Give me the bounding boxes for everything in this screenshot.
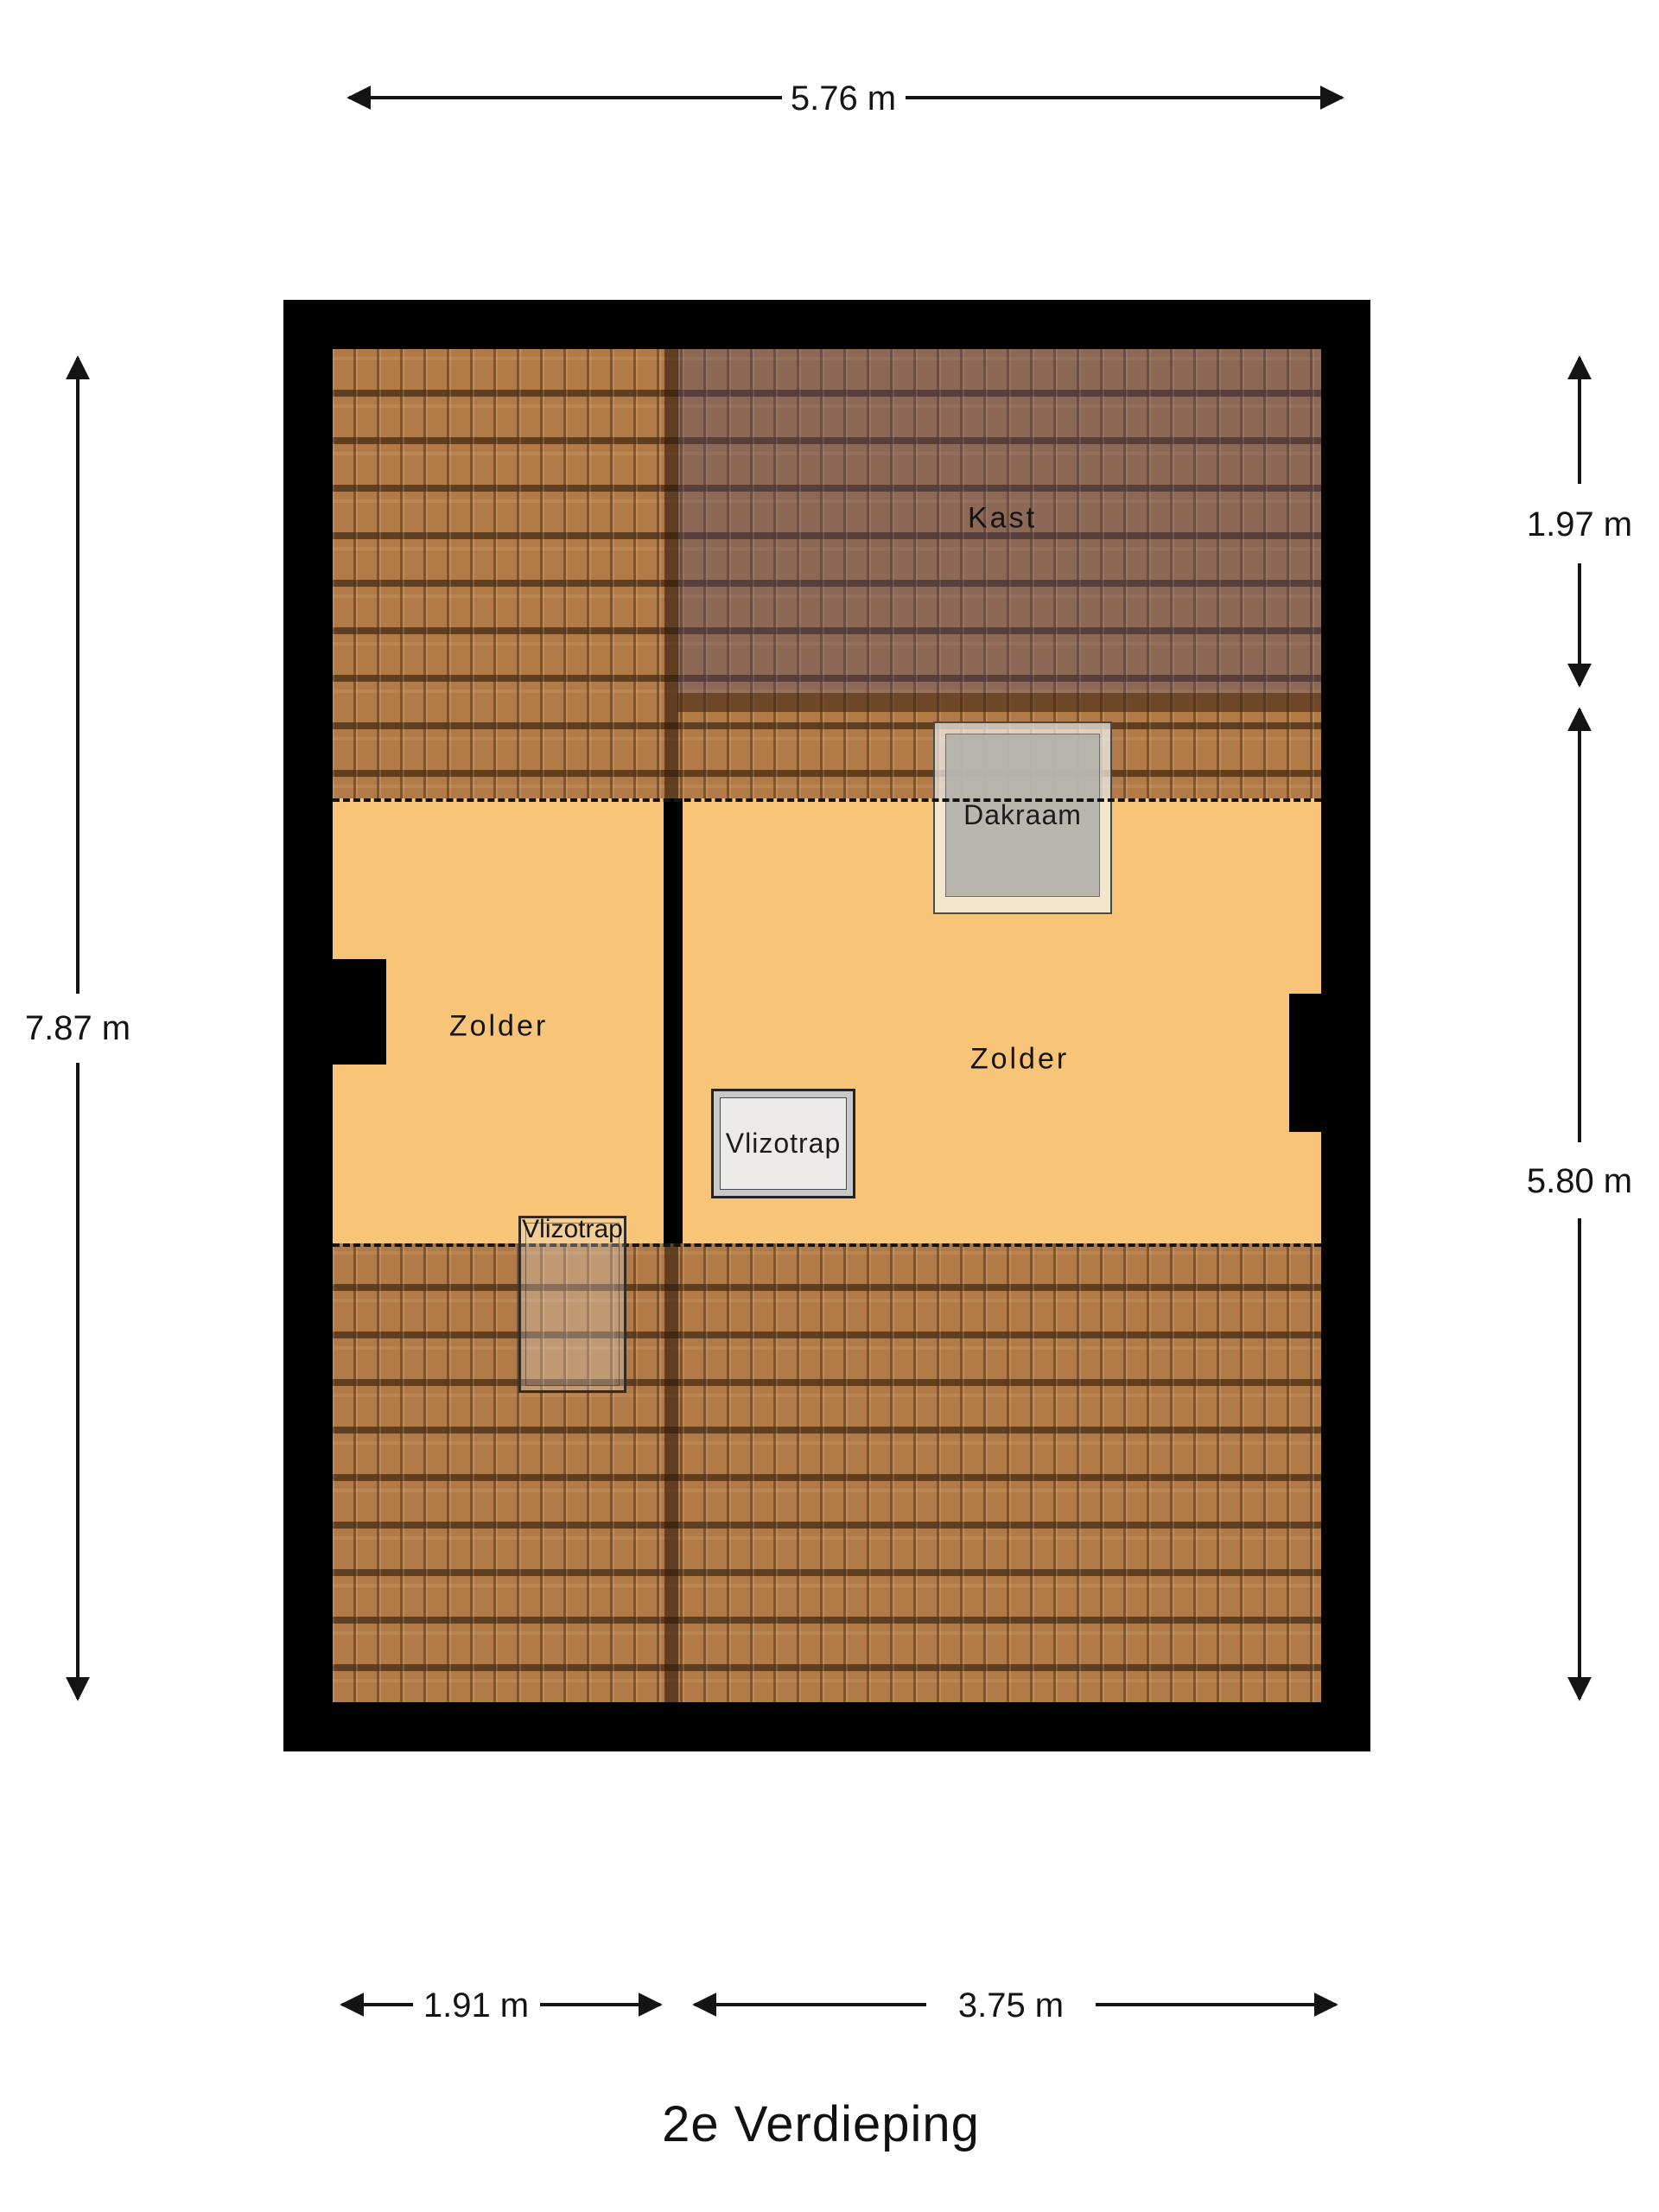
divider-wall — [664, 798, 683, 1243]
roof-floor-boundary-top — [333, 798, 1321, 802]
dakraam-roof-window: Dakraam — [933, 721, 1112, 914]
roof-band-bottom — [333, 1243, 1321, 1702]
dimension-label-left-height: 7.87 m — [25, 1009, 130, 1047]
vlizotrap-hatch-left-panel — [525, 1223, 620, 1386]
room-label-kast: Kast — [968, 502, 1037, 536]
room-label-zolder-left: Zolder — [449, 1010, 548, 1044]
dimension-bottom-left: 1.91 m — [342, 1986, 660, 2024]
dimension-top-width: 5.76 m — [349, 79, 1342, 118]
dimension-label-top-width: 5.76 m — [791, 79, 896, 118]
dimension-bottom-right: 3.75 m — [695, 1986, 1336, 2024]
vlizotrap-hatch-right: Vlizotrap — [711, 1089, 855, 1198]
room-label-zolder-right: Zolder — [970, 1043, 1069, 1077]
floor-plan-interior: Dakraam Vlizotrap Vlizotrap Kast Zolder … — [333, 349, 1321, 1702]
left-wall-protrusion — [333, 959, 386, 1065]
roof-seam-top — [664, 349, 678, 798]
vlizotrap-left-label: Vlizotrap — [522, 1215, 623, 1244]
dimension-label-right-lower: 5.80 m — [1527, 1162, 1632, 1200]
dakraam-glass: Dakraam — [945, 734, 1100, 897]
dimension-right-upper: 1.97 m — [1527, 358, 1632, 685]
floor-title: 2e Verdieping — [662, 2095, 980, 2153]
dimension-label-right-upper: 1.97 m — [1527, 505, 1632, 543]
roof-seam-bottom — [664, 1243, 678, 1702]
roof-floor-boundary-bottom — [333, 1243, 1321, 1247]
dimension-left-height: 7.87 m — [25, 358, 130, 1699]
vlizotrap-right-label: Vlizotrap — [726, 1128, 842, 1160]
dimension-label-bottom-left: 1.91 m — [423, 1986, 529, 2024]
dimension-label-bottom-right: 3.75 m — [958, 1986, 1064, 2024]
dimension-right-lower: 5.80 m — [1527, 709, 1632, 1699]
vlizotrap-hatch-left: Vlizotrap — [518, 1216, 626, 1393]
dakraam-label: Dakraam — [963, 799, 1082, 831]
vlizotrap-hatch-right-panel: Vlizotrap — [720, 1097, 847, 1190]
right-wall-protrusion — [1289, 994, 1321, 1132]
floor-plan-outer-wall: Dakraam Vlizotrap Vlizotrap Kast Zolder … — [283, 300, 1370, 1751]
kast-south-wall-band — [677, 693, 1321, 712]
